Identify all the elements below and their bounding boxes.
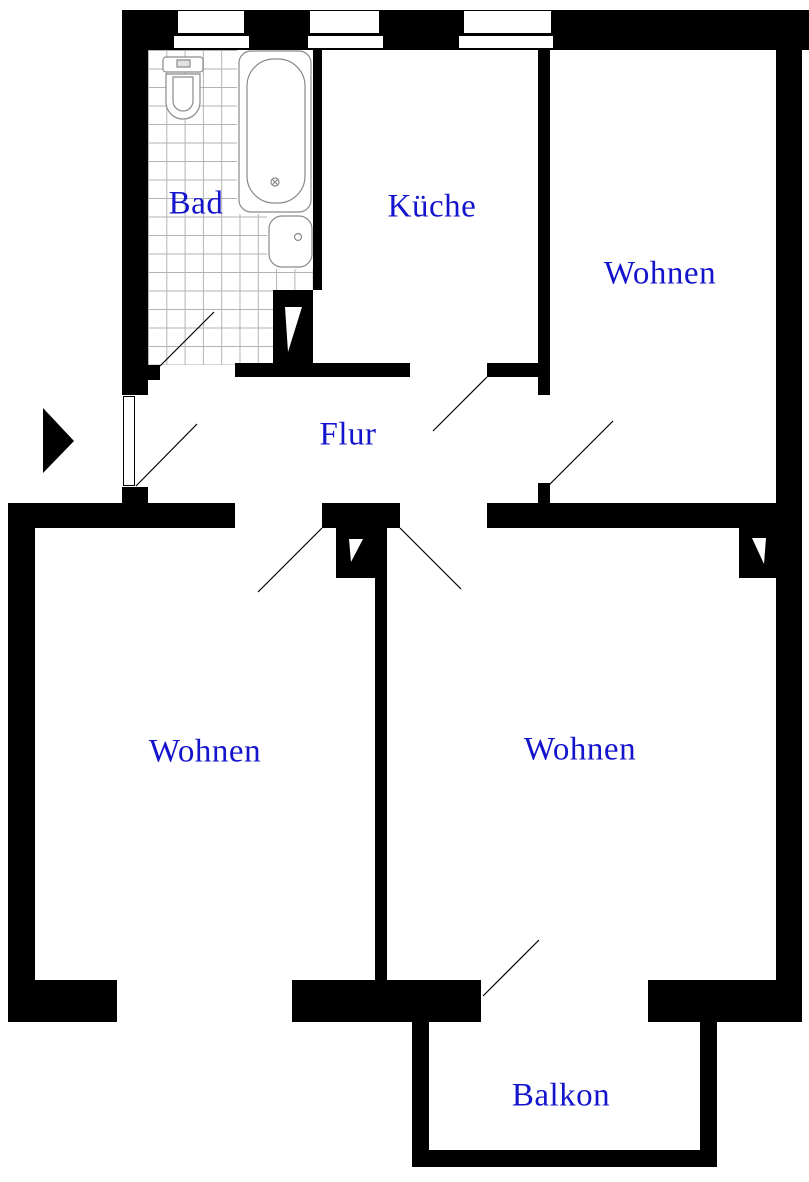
room-label-wohnen-right: Wohnen xyxy=(524,732,636,769)
floor-plan: Bad Küche Wohnen Flur Wohnen Wohnen Balk… xyxy=(0,0,809,1182)
room-label-wohnen-left: Wohnen xyxy=(149,734,261,771)
door-swing-wohnen-right xyxy=(400,528,461,589)
door-swing-kueche xyxy=(433,377,487,431)
room-label-kueche: Küche xyxy=(388,189,477,226)
room-label-bad: Bad xyxy=(169,186,224,223)
room-label-wohnen-top: Wohnen xyxy=(604,256,716,293)
door-swing-wohnen-left xyxy=(258,528,322,592)
room-label-flur: Flur xyxy=(319,417,376,454)
plan-symbols-layer xyxy=(0,0,809,1182)
door-swing-wohnen-top xyxy=(549,421,613,485)
door-swing-balcony xyxy=(483,940,539,996)
door-swing-bad xyxy=(160,312,214,366)
bathtub-icon xyxy=(239,51,311,212)
toilet-icon xyxy=(163,57,203,119)
door-swing-entrance xyxy=(136,424,197,486)
room-label-balkon: Balkon xyxy=(512,1078,610,1115)
sink-icon xyxy=(269,216,312,267)
door-swing-icon xyxy=(136,312,613,996)
